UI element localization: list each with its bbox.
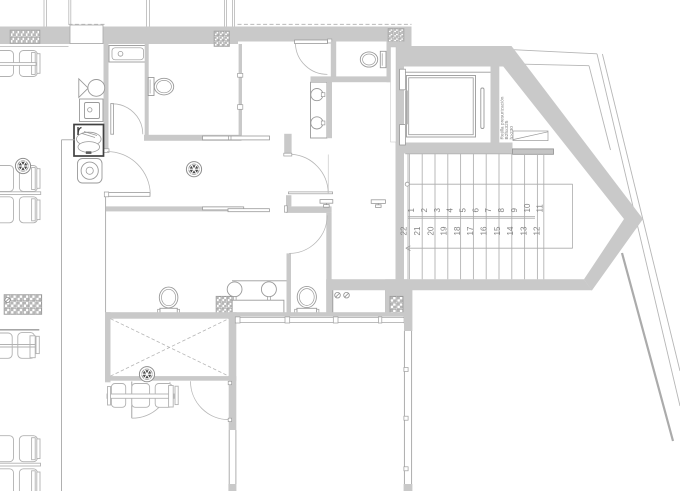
svg-text:22: 22	[400, 226, 409, 235]
svg-text:21: 21	[413, 226, 422, 235]
svg-text:17: 17	[466, 226, 475, 235]
svg-text:14: 14	[506, 226, 515, 235]
svg-text:13: 13	[519, 226, 528, 235]
svg-text:8: 8	[497, 208, 506, 213]
svg-text:19: 19	[440, 226, 449, 235]
svg-text:9: 9	[510, 208, 519, 213]
svg-text:11: 11	[536, 204, 545, 213]
svg-text:h>230: h>230	[509, 126, 515, 140]
svg-text:20: 20	[426, 226, 435, 235]
svg-text:5: 5	[459, 208, 468, 213]
svg-text:15: 15	[493, 226, 502, 235]
svg-text:4: 4	[446, 208, 455, 213]
svg-text:16: 16	[480, 226, 489, 235]
svg-text:7: 7	[484, 208, 493, 213]
svg-text:10: 10	[523, 203, 532, 212]
svg-text:1: 1	[407, 208, 416, 213]
svg-text:6: 6	[471, 208, 480, 213]
svg-text:12: 12	[533, 226, 542, 235]
svg-text:2: 2	[420, 208, 429, 213]
svg-text:18: 18	[453, 226, 462, 235]
svg-text:3: 3	[433, 208, 442, 213]
